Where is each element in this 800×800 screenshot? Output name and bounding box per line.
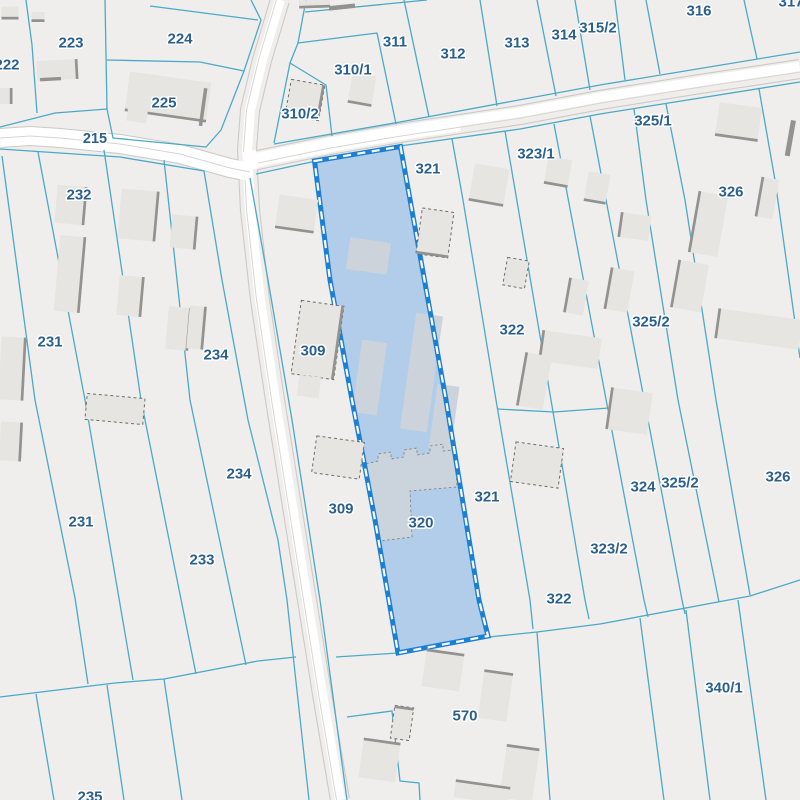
svg-text:321: 321 — [415, 161, 440, 178]
svg-text:325/2: 325/2 — [632, 314, 670, 331]
svg-text:323/1: 323/1 — [517, 146, 555, 163]
svg-text:313: 313 — [504, 35, 529, 52]
svg-text:325/1: 325/1 — [634, 113, 672, 130]
svg-text:317: 317 — [778, 0, 800, 11]
svg-text:225: 225 — [151, 95, 176, 112]
svg-text:310/1: 310/1 — [334, 62, 372, 79]
svg-text:316: 316 — [686, 3, 711, 20]
svg-text:224: 224 — [167, 31, 193, 48]
svg-text:223: 223 — [58, 35, 83, 52]
svg-text:314: 314 — [551, 27, 577, 44]
svg-text:322: 322 — [546, 591, 571, 608]
svg-text:326: 326 — [718, 184, 743, 201]
svg-text:320: 320 — [408, 515, 433, 532]
svg-text:215: 215 — [83, 131, 107, 147]
svg-text:231: 231 — [68, 514, 93, 531]
svg-text:232: 232 — [66, 187, 91, 204]
svg-text:321: 321 — [474, 489, 499, 506]
svg-text:323/2: 323/2 — [590, 541, 628, 558]
svg-text:312: 312 — [440, 46, 465, 63]
svg-text:309: 309 — [300, 343, 325, 360]
svg-text:326: 326 — [765, 469, 790, 486]
svg-text:322: 322 — [499, 322, 524, 339]
svg-text:340/1: 340/1 — [705, 680, 743, 697]
svg-text:233: 233 — [189, 552, 214, 569]
svg-text:222: 222 — [0, 57, 20, 74]
svg-text:234: 234 — [203, 347, 229, 364]
svg-text:310/2: 310/2 — [281, 106, 319, 123]
svg-text:325/2: 325/2 — [661, 475, 699, 492]
svg-text:311: 311 — [383, 34, 407, 51]
svg-text:235: 235 — [77, 789, 102, 800]
svg-text:231: 231 — [37, 334, 62, 351]
svg-text:315/2: 315/2 — [579, 20, 617, 37]
svg-text:309: 309 — [328, 501, 353, 518]
svg-text:234: 234 — [226, 466, 252, 483]
svg-text:324: 324 — [630, 479, 656, 496]
svg-text:570: 570 — [452, 708, 477, 725]
